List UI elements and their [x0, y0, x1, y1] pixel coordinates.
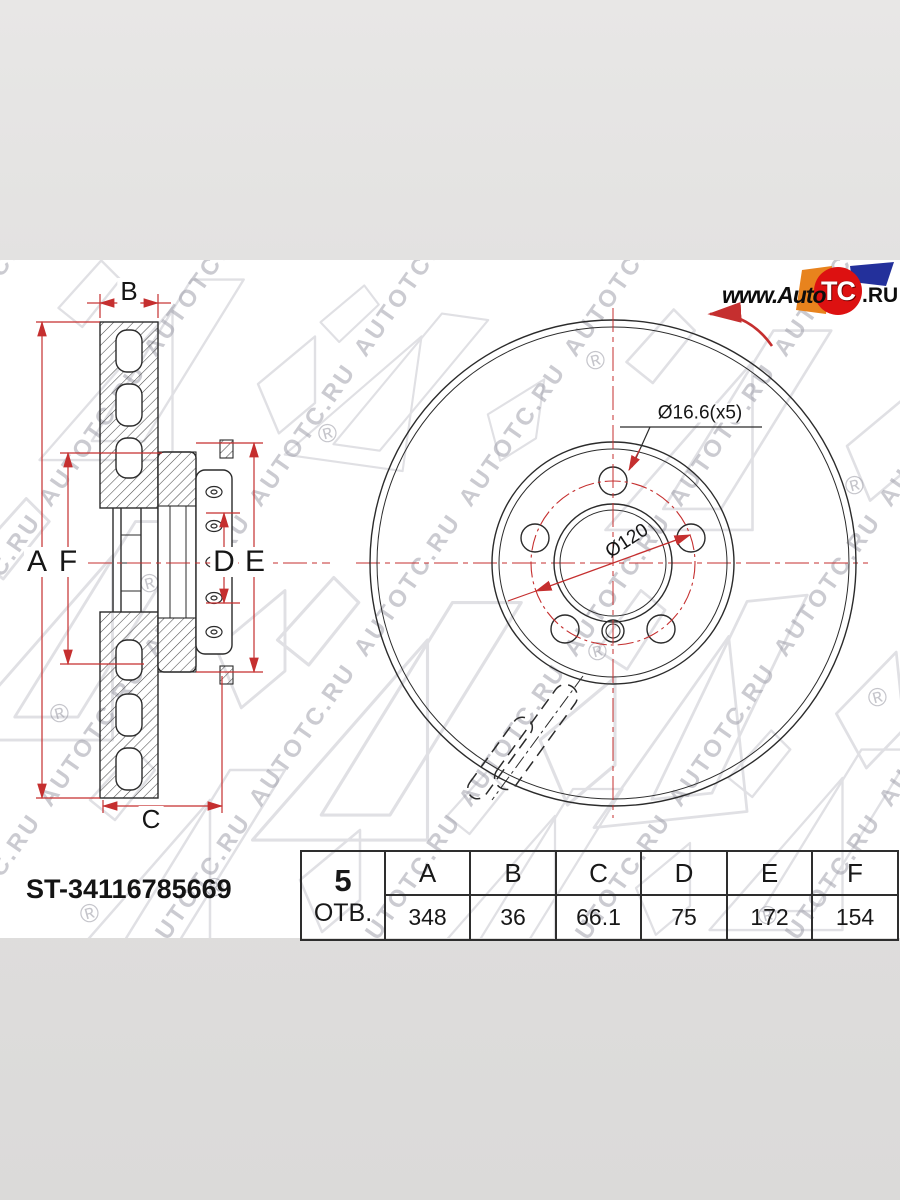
watermark-text: AUTOTC.RU	[244, 658, 363, 812]
watermark-text: AUTOTC.RU	[139, 508, 258, 662]
holes-label: ОТВ.	[314, 899, 372, 927]
dim-label-a: A	[24, 547, 50, 577]
background-watermark-shapes	[0, 260, 900, 938]
value-c: 66.1	[556, 895, 641, 940]
table-header-row: 5 ОТВ. A B C D E F	[301, 851, 898, 895]
watermark-text: AUTOTC.RU	[349, 508, 468, 662]
watermark-text: AUTOTC.RU	[664, 658, 783, 812]
col-header-c: C	[556, 851, 641, 895]
watermark-registered-icon: ®	[584, 634, 611, 669]
watermark-text: AUTOTC.RU	[874, 358, 900, 512]
col-header-d: D	[641, 851, 727, 895]
watermark-text: AUTOTC.RU	[0, 508, 48, 662]
watermark-text-layer: AUTOTC.RUAUTOTC.RUAUTOTC.RUAUTOTC.RUAUTO…	[0, 260, 900, 938]
dim-label-f: F	[56, 547, 80, 577]
watermark-text: AUTOTC.RU	[454, 358, 573, 512]
logo-prefix-text: www.Auto	[722, 282, 826, 309]
watermark-text: AUTOTC.RU	[139, 260, 258, 362]
col-header-a: A	[385, 851, 470, 895]
drawing-canvas: AUTOTC.RUAUTOTC.RUAUTOTC.RUAUTOTC.RUAUTO…	[0, 260, 900, 938]
dim-label-c: C	[139, 806, 164, 832]
value-b: 36	[470, 895, 556, 940]
dim-label-e: E	[242, 547, 268, 577]
watermark-registered-icon: ®	[136, 566, 163, 601]
value-d: 75	[641, 895, 727, 940]
logo-tc-text: TC	[821, 276, 855, 307]
watermark-registered-icon: ®	[314, 416, 341, 451]
dim-label-b: B	[117, 278, 140, 304]
col-header-e: E	[727, 851, 812, 895]
watermark-text: AUTOTC.RU	[244, 358, 363, 512]
table-value-row: 348 36 66.1 75 172 154	[301, 895, 898, 940]
value-a: 348	[385, 895, 470, 940]
product-drawing-page: { "logo": { "prefix": "www.Auto", "circl…	[0, 0, 900, 1200]
watermark-text: AUTOTC.RU	[0, 260, 48, 362]
watermark-registered-icon: ®	[841, 468, 868, 503]
watermark-text: AUTOTC.RU	[34, 358, 153, 512]
part-number: ST-34116785669	[26, 874, 232, 905]
watermark-text: AUTOTC.RU	[559, 260, 678, 362]
bolt-hole-diameter-label: Ø16.6(x5)	[656, 404, 744, 423]
value-e: 172	[727, 895, 812, 940]
watermark-registered-icon: ®	[864, 680, 891, 715]
watermark-text: AUTOTC.RU	[559, 508, 678, 662]
watermark-text: AUTOTC.RU	[664, 358, 783, 512]
watermark-registered-icon: ®	[582, 343, 609, 378]
dim-label-d: D	[210, 547, 238, 577]
watermark-text: AUTOTC.RU	[34, 658, 153, 812]
autotc-logo: TC www.Auto .RU	[710, 258, 900, 324]
spec-table: 5 ОТВ. A B C D E F 348 36 66.1 75 172 15…	[300, 850, 899, 941]
value-f: 154	[812, 895, 898, 940]
holes-cell: 5 ОТВ.	[301, 851, 385, 940]
watermark-text: AUTOTC.RU	[349, 260, 468, 362]
watermark-text: AUTOTC.RU	[874, 658, 900, 812]
watermark-text: AUTOTC.RU	[454, 658, 573, 812]
col-header-f: F	[812, 851, 898, 895]
holes-count: 5	[334, 863, 351, 898]
logo-suffix-text: .RU	[862, 284, 898, 308]
watermark-registered-icon: ®	[46, 696, 73, 731]
watermark-text: AUTOTC.RU	[769, 508, 888, 662]
col-header-b: B	[470, 851, 556, 895]
